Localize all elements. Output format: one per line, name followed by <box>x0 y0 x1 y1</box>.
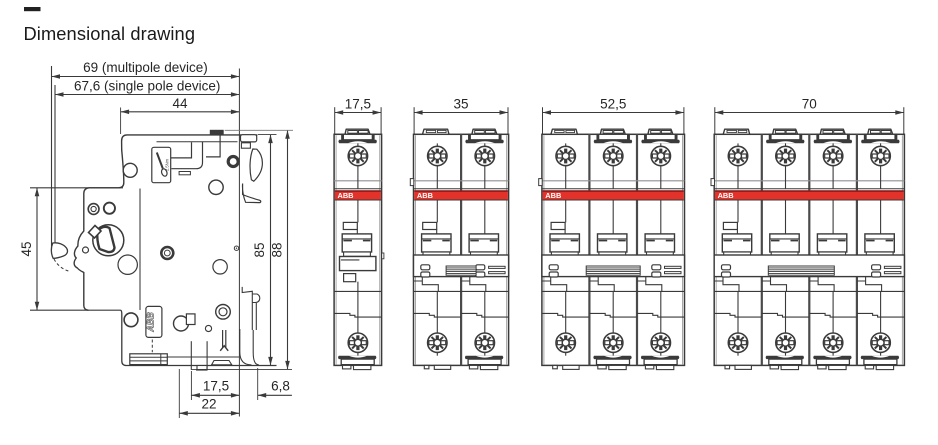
svg-text:ABB: ABB <box>417 191 433 200</box>
svg-text:6,8: 6,8 <box>271 379 290 394</box>
svg-text:17,5: 17,5 <box>203 379 229 394</box>
svg-text:ABB: ABB <box>146 312 156 333</box>
svg-text:88: 88 <box>270 242 285 257</box>
svg-text:ABB: ABB <box>545 191 561 200</box>
svg-text:44: 44 <box>172 96 188 111</box>
svg-text:ABB: ABB <box>338 191 354 200</box>
svg-text:2.5Nm: 2.5Nm <box>165 158 170 171</box>
svg-text:67,6 (single pole device): 67,6 (single pole device) <box>74 78 220 93</box>
svg-text:22: 22 <box>201 397 216 412</box>
svg-text:85: 85 <box>252 242 267 257</box>
svg-text:45: 45 <box>19 241 34 256</box>
svg-text:17,5: 17,5 <box>345 97 371 112</box>
svg-text:69 (multipole device): 69 (multipole device) <box>83 60 208 75</box>
svg-text:35: 35 <box>454 97 469 112</box>
svg-text:Dimensional drawing: Dimensional drawing <box>24 23 196 44</box>
svg-text:70: 70 <box>802 97 817 112</box>
svg-text:ABB: ABB <box>718 191 734 200</box>
svg-text:52,5: 52,5 <box>600 97 626 112</box>
